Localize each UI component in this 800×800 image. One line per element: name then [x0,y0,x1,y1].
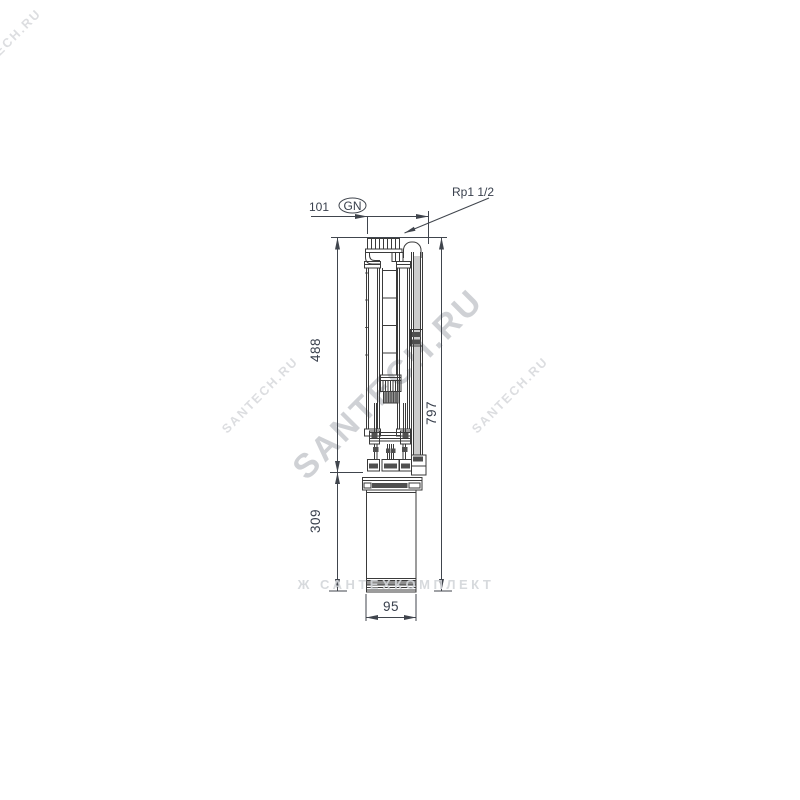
drawing-canvas: SANTECH.RU SANTECH.RU SANTECH.RU SANTECH… [0,0,800,800]
watermark-side-right: SANTECH.RU [469,354,551,436]
label-gn: GN [344,199,362,213]
watermark-bottom: Ж САНТЕХКОМПЛЕКТ [297,577,495,592]
dimension-95: 95 [366,599,416,620]
watermark-layer-under: SANTECH.RU SANTECH.RU SANTECH.RU SANTECH… [0,6,551,487]
label-101: 101 [309,200,329,214]
pump-dimensional-drawing: SANTECH.RU SANTECH.RU SANTECH.RU SANTECH… [0,0,800,800]
annotation-rp112: Rp1 1/2 [405,185,495,233]
discharge-thread [366,239,403,253]
label-rp112: Rp1 1/2 [452,185,494,199]
label-488: 488 [308,338,323,362]
dimension-layer: 101 GN Rp1 1/2 488 309 [308,185,494,621]
label-309: 309 [308,509,323,533]
suction-interconnector [368,403,412,471]
dimension-309: 309 [308,473,340,591]
label-797: 797 [424,401,439,425]
nameplate-strip [372,483,408,488]
label-95: 95 [383,599,399,614]
dimension-797: 797 [424,238,444,591]
watermark-side-left: SANTECH.RU [219,354,301,436]
motor-flange [363,478,423,491]
watermark-corner: SANTECH.RU [0,6,44,88]
